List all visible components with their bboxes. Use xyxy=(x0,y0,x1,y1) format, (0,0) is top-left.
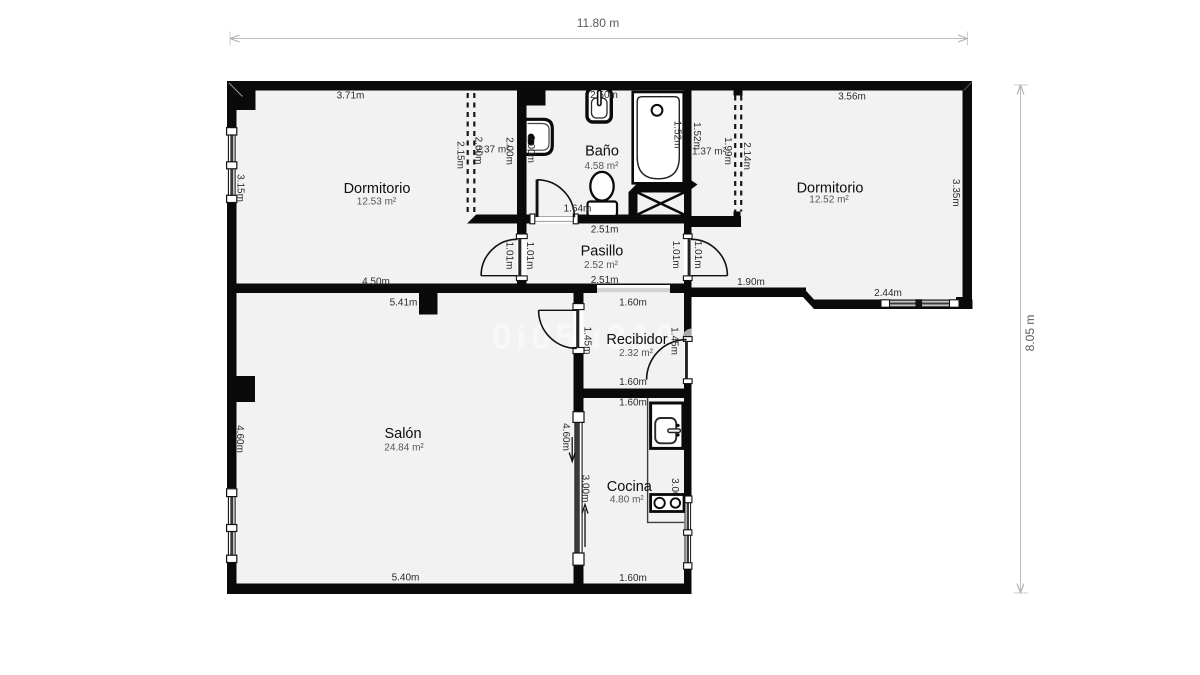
svg-text:4.80 m²: 4.80 m² xyxy=(610,494,645,505)
svg-text:1.45m: 1.45m xyxy=(668,327,679,355)
svg-text:2.14m: 2.14m xyxy=(741,142,752,170)
svg-text:Dormitorio: Dormitorio xyxy=(344,181,411,197)
svg-text:2.00m: 2.00m xyxy=(525,135,536,163)
svg-text:Recibidor: Recibidor xyxy=(606,332,667,348)
svg-text:1.52m: 1.52m xyxy=(691,122,702,150)
svg-text:1.60m: 1.60m xyxy=(619,397,647,408)
svg-text:2.00m: 2.00m xyxy=(504,137,515,165)
svg-text:2.15m: 2.15m xyxy=(455,141,466,169)
svg-text:24.84 m²: 24.84 m² xyxy=(384,443,424,454)
svg-text:4.58 m²: 4.58 m² xyxy=(585,161,620,172)
svg-text:3.56m: 3.56m xyxy=(838,92,866,103)
svg-text:1.52m: 1.52m xyxy=(672,121,683,149)
svg-text:2.51m: 2.51m xyxy=(591,275,619,286)
svg-text:1.01m: 1.01m xyxy=(524,242,535,270)
svg-text:Dormitorio: Dormitorio xyxy=(797,181,864,197)
svg-text:1.90m: 1.90m xyxy=(737,277,765,288)
svg-text:2.32 m²: 2.32 m² xyxy=(619,348,654,359)
svg-text:1.99m: 1.99m xyxy=(722,137,733,165)
svg-text:1.45m: 1.45m xyxy=(582,327,593,355)
svg-text:11.80 m: 11.80 m xyxy=(577,16,619,30)
svg-text:12.53 m²: 12.53 m² xyxy=(357,197,397,208)
svg-text:3.00m: 3.00m xyxy=(580,475,591,503)
svg-text:2.44m: 2.44m xyxy=(874,288,902,299)
svg-text:4.50m: 4.50m xyxy=(362,276,390,287)
svg-text:1.60m: 1.60m xyxy=(619,297,647,308)
svg-text:2.50m: 2.50m xyxy=(590,90,618,101)
svg-text:2.51m: 2.51m xyxy=(591,225,619,236)
svg-text:Baño: Baño xyxy=(585,144,619,160)
svg-text:8.05 m: 8.05 m xyxy=(1023,315,1037,352)
svg-text:1.64m: 1.64m xyxy=(564,203,592,214)
svg-text:1.01m: 1.01m xyxy=(670,241,681,269)
svg-text:5.41m: 5.41m xyxy=(390,298,418,309)
svg-text:2.52 m²: 2.52 m² xyxy=(584,260,619,271)
svg-text:Cocina: Cocina xyxy=(607,479,653,495)
svg-text:4.60m: 4.60m xyxy=(560,423,571,451)
svg-text:2.00m: 2.00m xyxy=(473,137,484,165)
svg-text:1.01m: 1.01m xyxy=(503,242,514,270)
svg-text:5.40m: 5.40m xyxy=(392,573,420,584)
svg-text:1.60m: 1.60m xyxy=(619,573,647,584)
svg-text:1.60m: 1.60m xyxy=(619,377,647,388)
svg-text:4.60m: 4.60m xyxy=(234,425,245,453)
svg-text:Salón: Salón xyxy=(384,426,421,442)
svg-text:3.71m: 3.71m xyxy=(337,91,365,102)
svg-text:3.15m: 3.15m xyxy=(234,174,245,202)
svg-text:3.35m: 3.35m xyxy=(950,179,961,207)
svg-text:Pasillo: Pasillo xyxy=(581,244,624,260)
svg-text:1.01m: 1.01m xyxy=(692,241,703,269)
